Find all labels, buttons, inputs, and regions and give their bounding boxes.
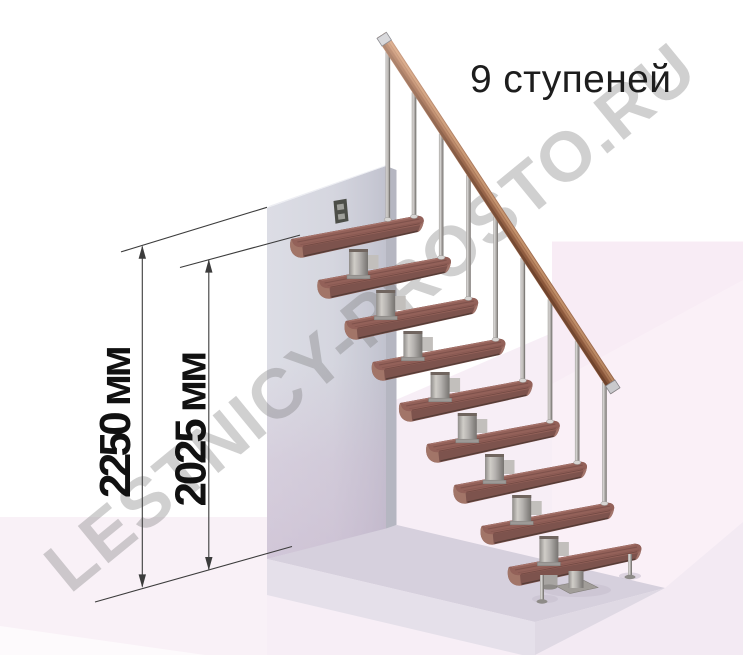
- svg-text:2250 мм: 2250 мм: [91, 345, 140, 498]
- svg-text:2025 мм: 2025 мм: [167, 351, 216, 507]
- svg-text:9 ступеней: 9 ступеней: [470, 58, 671, 101]
